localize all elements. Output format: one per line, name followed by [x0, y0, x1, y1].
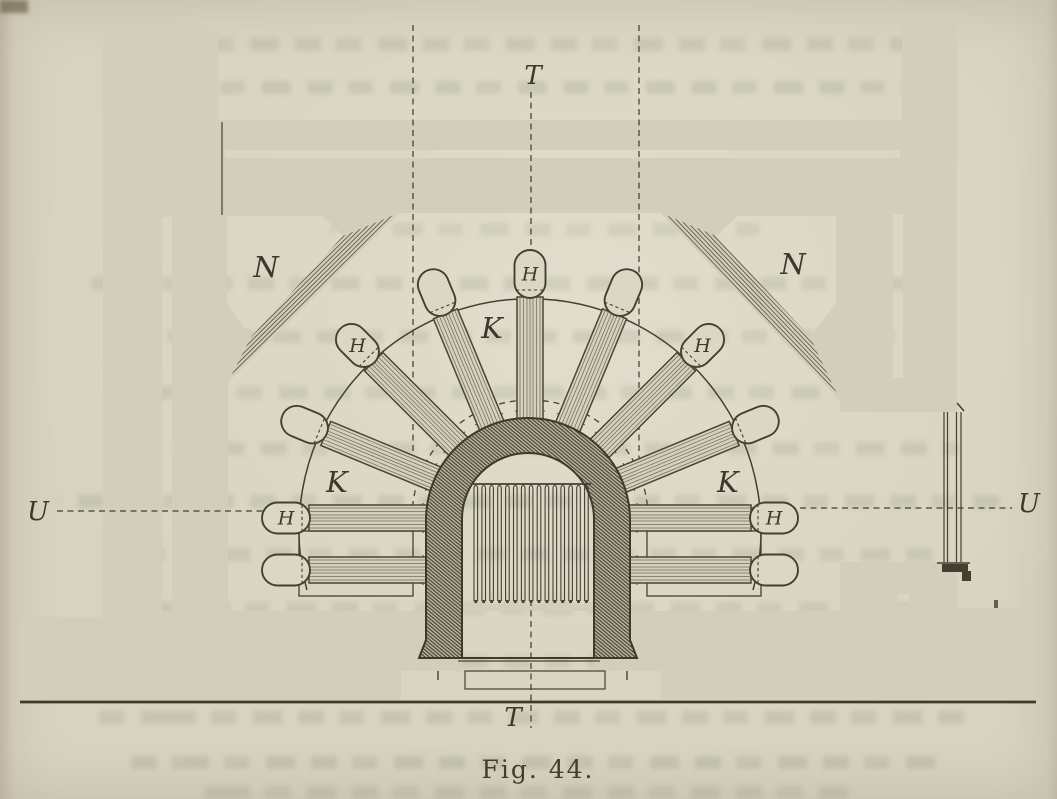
- tube-fluting-line: [601, 365, 688, 452]
- tube-cap: [750, 555, 798, 586]
- grate-bar: [529, 486, 533, 602]
- label-flue-top: K: [480, 311, 505, 345]
- furnace-arch: [419, 418, 637, 658]
- tube-fluting-line: [567, 315, 614, 429]
- door-foot-block: [942, 564, 968, 572]
- label-tube-H: H: [521, 264, 539, 286]
- door-foot-block-small: [962, 571, 971, 581]
- tube-fluting-line: [370, 367, 457, 454]
- label-tube-H: H: [693, 335, 711, 357]
- tube-fluting-line: [599, 362, 686, 449]
- tube-fluting-line: [594, 358, 681, 445]
- grate-bar: [474, 486, 478, 602]
- grate-bar-foot: [585, 600, 588, 603]
- grate-bar: [521, 486, 525, 602]
- grate-bar-foot: [569, 600, 572, 603]
- grate-bar-foot: [514, 600, 517, 603]
- grate-bar-foot: [474, 600, 477, 603]
- grate-bar: [537, 486, 541, 602]
- grate-bar-foot: [490, 600, 493, 603]
- label-section-U-right: U: [1018, 489, 1041, 519]
- grate-bar-foot: [482, 600, 485, 603]
- arch-masonry: [419, 418, 637, 658]
- heating-tube-lower-right: [626, 555, 798, 586]
- fire-grate: [471, 484, 591, 603]
- book-page: N N K K K T T U U HHHHH Fig. 44.: [0, 0, 1057, 799]
- grate-bar-foot: [561, 600, 564, 603]
- grate-bar: [561, 486, 565, 602]
- grate-bar-foot: [577, 600, 580, 603]
- grate-bar-foot: [498, 600, 501, 603]
- grate-bar-foot: [545, 600, 548, 603]
- figure-caption: Fig. 44.: [398, 755, 678, 784]
- tube-fluting-line: [596, 360, 683, 447]
- grate-bar: [506, 486, 510, 602]
- grate-bar-foot: [522, 600, 525, 603]
- label-niche-left: N: [252, 250, 280, 284]
- label-tube-H: H: [765, 508, 783, 530]
- grate-bar-foot: [530, 600, 533, 603]
- grate-bar: [577, 486, 581, 602]
- label-section-T-top: T: [524, 61, 543, 91]
- tube-fluting-line: [374, 362, 461, 449]
- tube-fluting-line: [372, 365, 459, 452]
- grate-bar: [498, 486, 502, 602]
- grate-bar: [545, 486, 549, 602]
- figure-44-engraving: N N K K K T T U U HHHHH: [0, 0, 1057, 799]
- grate-bar: [553, 486, 557, 602]
- label-flue-left: K: [325, 465, 350, 499]
- tube-fluting-line: [377, 360, 464, 447]
- grate-bar: [585, 486, 589, 602]
- label-tube-H: H: [277, 508, 295, 530]
- label-section-U-left: U: [27, 497, 50, 527]
- grate-bar: [514, 486, 518, 602]
- grate-bar-foot: [506, 600, 509, 603]
- tube-fluting-line: [379, 358, 466, 445]
- label-tube-H: H: [348, 335, 366, 357]
- foundation-lip: [994, 600, 998, 608]
- tube-cap: [262, 555, 310, 586]
- grate-bar: [482, 486, 486, 602]
- grate-bar-foot: [553, 600, 556, 603]
- label-section-T-bottom: T: [504, 703, 523, 733]
- door-top-tick: [957, 403, 964, 411]
- heating-tube-lower-left: [262, 555, 434, 586]
- grate-bar: [490, 486, 494, 602]
- label-flue-right: K: [716, 465, 741, 499]
- pedestal-panel: [465, 671, 605, 689]
- grate-bar: [569, 486, 573, 602]
- grate-bar-foot: [537, 600, 540, 603]
- tube-fluting-line: [603, 367, 690, 454]
- label-niche-right: N: [779, 247, 807, 281]
